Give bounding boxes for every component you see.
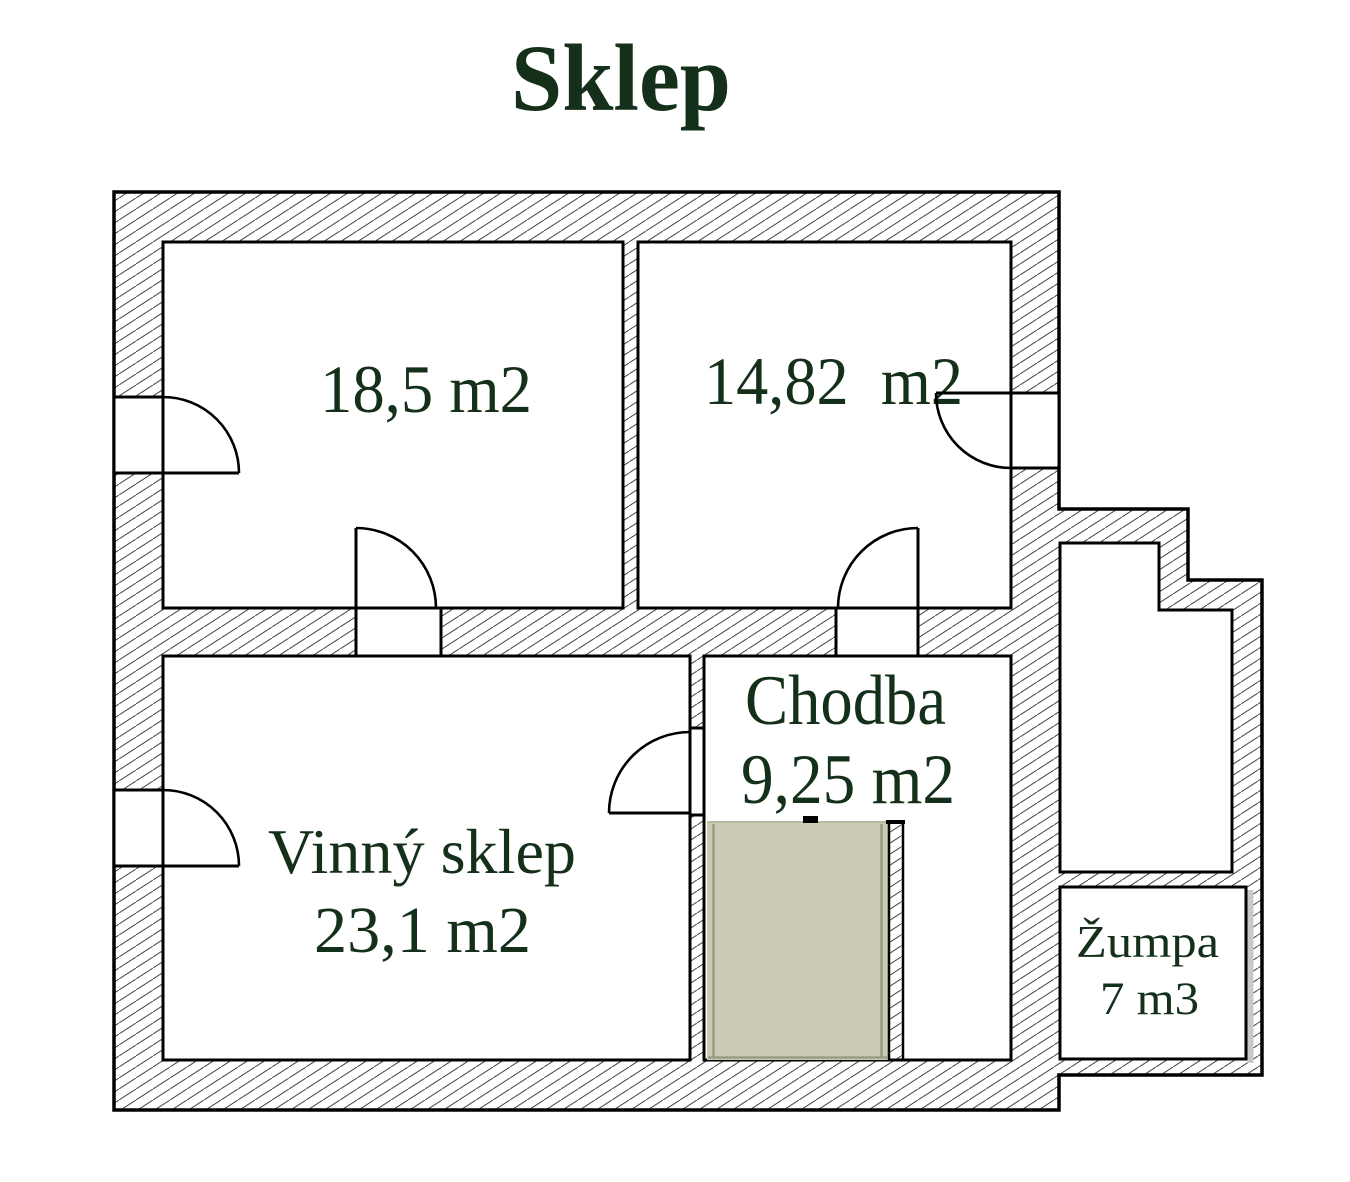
svg-text:7 m3: 7 m3: [1100, 973, 1199, 1025]
svg-text:Vinný sklep: Vinný sklep: [268, 816, 576, 887]
svg-text:23,1 m2: 23,1 m2: [314, 894, 531, 967]
svg-text:9,25 m2: 9,25 m2: [741, 741, 955, 819]
svg-text:Chodba: Chodba: [745, 662, 946, 740]
svg-text:14,82 m2: 14,82 m2: [704, 343, 963, 419]
svg-text:Sklep: Sklep: [511, 25, 731, 131]
svg-text:Žumpa: Žumpa: [1076, 916, 1219, 967]
svg-text:18,5 m2: 18,5 m2: [320, 351, 532, 427]
